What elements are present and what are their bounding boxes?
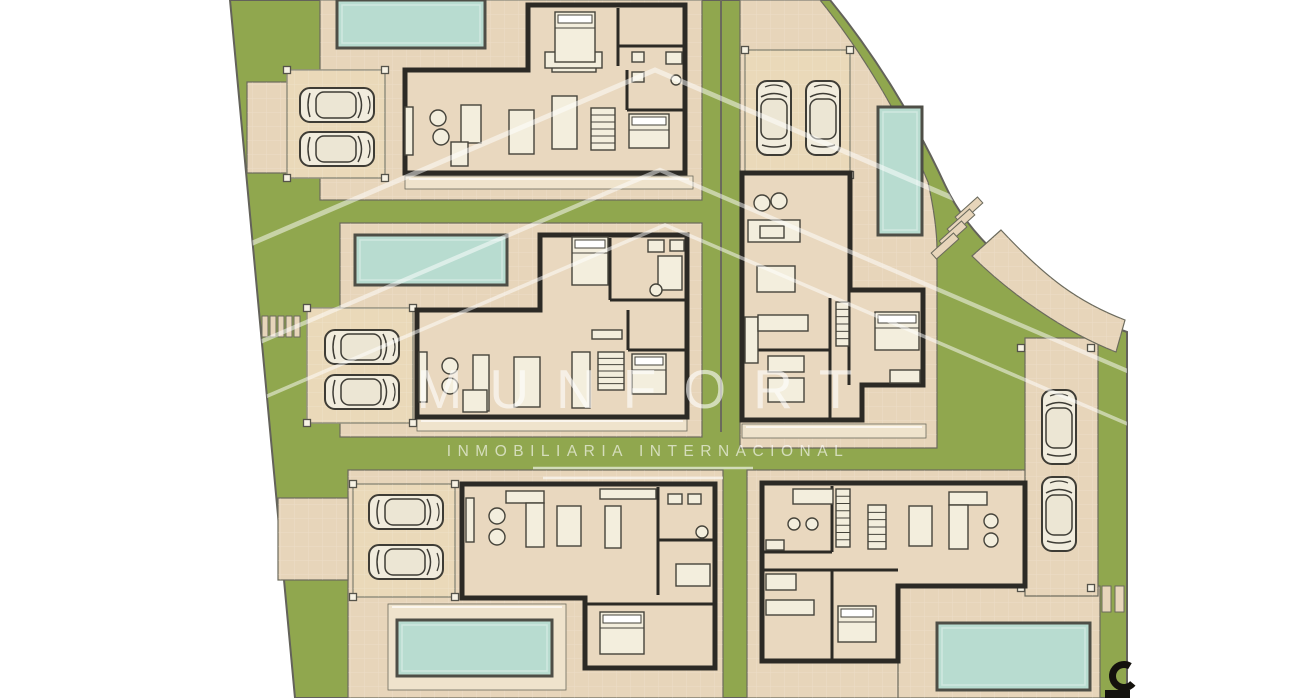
round-furniture bbox=[433, 129, 449, 145]
furniture bbox=[506, 491, 544, 503]
fence-post bbox=[382, 67, 389, 74]
furniture bbox=[676, 564, 710, 586]
furniture bbox=[658, 256, 682, 290]
round-furniture bbox=[489, 529, 505, 545]
furniture bbox=[632, 52, 644, 62]
fence-post bbox=[847, 47, 854, 54]
watermark-brand-text: MUNFORT bbox=[417, 358, 880, 420]
furniture bbox=[648, 240, 664, 252]
swimming-pool bbox=[397, 620, 552, 676]
villas-site-plan: MUNFORT INMOBILIARIA INTERNACIONAL bbox=[0, 0, 1290, 698]
car bbox=[369, 545, 443, 579]
terrace-villa-3-grid bbox=[278, 498, 348, 580]
car-roof bbox=[316, 92, 356, 118]
bed-pillow bbox=[575, 240, 605, 248]
car bbox=[300, 132, 374, 166]
car bbox=[1042, 477, 1076, 551]
fence-post bbox=[410, 420, 417, 427]
car-roof bbox=[316, 136, 356, 162]
bed-pillow bbox=[558, 15, 592, 23]
fence-post bbox=[350, 481, 357, 488]
round-furniture bbox=[489, 508, 505, 524]
furniture bbox=[688, 494, 701, 504]
car bbox=[300, 88, 374, 122]
car bbox=[325, 375, 399, 409]
furniture bbox=[766, 600, 814, 615]
furniture bbox=[949, 492, 987, 505]
corner-brand-mark-block bbox=[1105, 690, 1130, 698]
bed-pillow bbox=[841, 609, 873, 617]
bed-pillow bbox=[603, 615, 641, 623]
furniture bbox=[666, 52, 682, 64]
driveway-grid bbox=[1025, 338, 1098, 596]
swimming-pool bbox=[337, 0, 485, 48]
fence-post bbox=[284, 175, 291, 182]
path-step bbox=[262, 316, 268, 337]
furniture bbox=[600, 489, 656, 499]
furniture bbox=[909, 506, 932, 546]
furniture bbox=[758, 315, 808, 331]
round-furniture bbox=[430, 110, 446, 126]
round-furniture bbox=[771, 193, 787, 209]
round-furniture bbox=[754, 195, 770, 211]
furniture bbox=[760, 226, 784, 238]
furniture bbox=[557, 506, 581, 546]
bed-pillow bbox=[632, 117, 666, 125]
furniture bbox=[670, 240, 684, 251]
car bbox=[325, 330, 399, 364]
furniture bbox=[766, 540, 784, 550]
terrace-deck bbox=[405, 176, 693, 189]
fence-post bbox=[742, 47, 749, 54]
car-roof bbox=[385, 499, 425, 525]
round-furniture bbox=[650, 284, 662, 296]
fence-post bbox=[284, 67, 291, 74]
furniture bbox=[461, 105, 481, 143]
fence-post bbox=[1018, 345, 1025, 352]
fence-post bbox=[304, 305, 311, 312]
furniture bbox=[592, 330, 622, 339]
round-furniture bbox=[788, 518, 800, 530]
fence-post bbox=[452, 481, 459, 488]
furniture bbox=[949, 505, 968, 549]
round-furniture bbox=[984, 514, 998, 528]
round-furniture bbox=[806, 518, 818, 530]
fence-post bbox=[1088, 585, 1095, 592]
watermark-tagline-text: INMOBILIARIA INTERNACIONAL bbox=[447, 443, 849, 460]
furniture bbox=[466, 498, 474, 542]
car bbox=[369, 495, 443, 529]
fence-post bbox=[1088, 345, 1095, 352]
furniture bbox=[405, 107, 413, 155]
furniture bbox=[766, 574, 796, 590]
furniture bbox=[526, 503, 544, 547]
car-roof bbox=[810, 99, 836, 139]
car-roof bbox=[341, 379, 381, 405]
car-roof bbox=[1046, 408, 1072, 448]
car-roof bbox=[1046, 495, 1072, 535]
car-roof bbox=[385, 549, 425, 575]
furniture bbox=[890, 370, 920, 383]
fence-post bbox=[382, 175, 389, 182]
furniture bbox=[793, 489, 833, 504]
swimming-pool bbox=[355, 235, 507, 285]
furniture bbox=[745, 317, 758, 363]
plan-shapes bbox=[226, 0, 1151, 698]
furniture bbox=[605, 506, 621, 548]
swimming-pool bbox=[937, 623, 1090, 690]
round-furniture bbox=[696, 526, 708, 538]
gate-post bbox=[1115, 586, 1124, 612]
site-plan-page: MUNFORT INMOBILIARIA INTERNACIONAL bbox=[0, 0, 1290, 698]
fence-post bbox=[350, 594, 357, 601]
round-furniture bbox=[984, 533, 998, 547]
fence-post bbox=[452, 594, 459, 601]
furniture bbox=[668, 494, 682, 504]
gate-post bbox=[1102, 586, 1111, 612]
fence-post bbox=[304, 420, 311, 427]
